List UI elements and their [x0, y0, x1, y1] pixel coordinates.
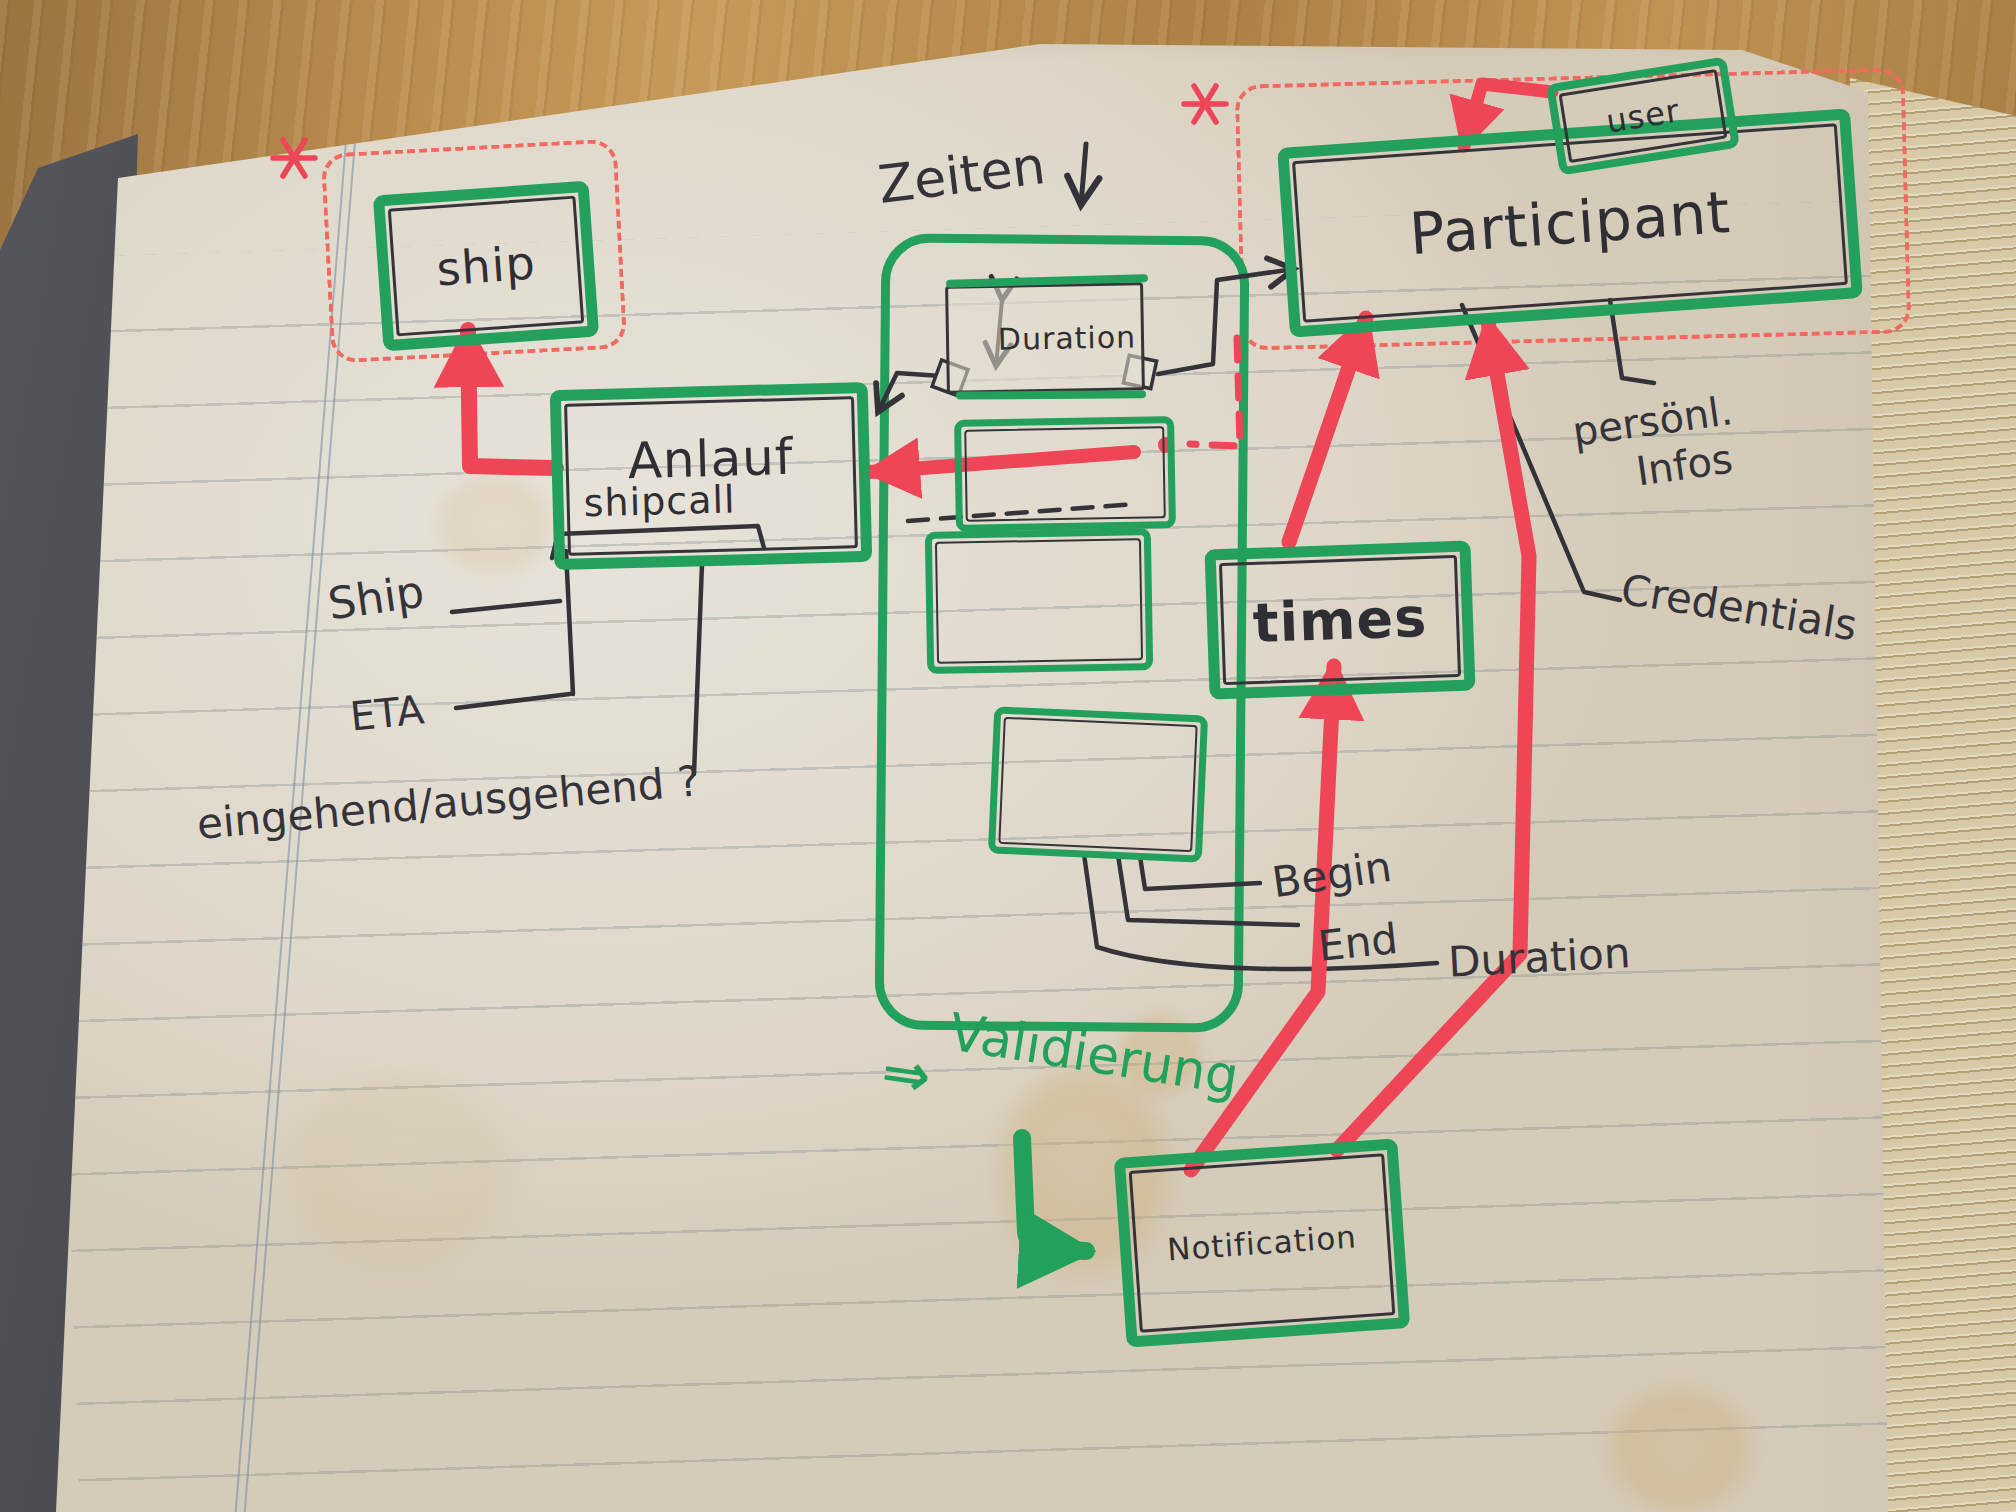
entity-box-ship: ship — [373, 181, 599, 352]
attr-label-eta: ETA — [348, 686, 426, 739]
entity-box-duration: Duration — [945, 282, 1145, 393]
asterisk-mark-ship — [273, 140, 315, 176]
entity-label-participant: Participant — [1407, 178, 1732, 268]
duration-to-shipcall-connector — [878, 373, 941, 412]
time-slot-box-3 — [988, 706, 1208, 862]
shipcall-attr-stem-1 — [566, 551, 573, 694]
eta-attr-connector — [456, 694, 570, 708]
begin-attr-connector — [1140, 856, 1260, 889]
arrow-shipcall-to-ship — [468, 330, 556, 468]
asterisk-mark-participant — [1184, 86, 1226, 122]
zeiten-down-arrow-icon — [1081, 144, 1086, 205]
entity-box-shipcall: Anlauf shipcall — [550, 382, 873, 570]
arrow-times-to-participant — [1289, 318, 1366, 542]
duration-to-participant-connector — [1158, 269, 1294, 374]
arrow-validation-to-notification — [1022, 1138, 1086, 1251]
entity-box-times: times — [1204, 540, 1475, 699]
entity-label-duration: Duration — [998, 319, 1137, 356]
entity-box-notification: Notification — [1114, 1138, 1411, 1347]
ship-attr-connector — [452, 601, 560, 612]
entity-label-ship: ship — [435, 236, 538, 297]
entity-label-notification: Notification — [1166, 1218, 1358, 1267]
time-slot-box-2 — [925, 528, 1153, 674]
entity-label-times: times — [1252, 585, 1428, 654]
notebook-photo: ship Anlauf shipcall Participant user Du… — [0, 0, 2016, 1512]
attr-label-end: End — [1316, 914, 1401, 971]
attr-label-duration: Duration — [1447, 928, 1632, 986]
time-slot-box-1 — [954, 416, 1176, 532]
arrow-notification-to-participant — [1337, 322, 1529, 1150]
entity-sublabel-shipcall: shipcall — [569, 477, 736, 525]
entity-label-user: user — [1604, 91, 1683, 140]
inout-attr-stem — [694, 564, 702, 774]
validation-arrow-glyph: ⇒ — [878, 1037, 936, 1111]
